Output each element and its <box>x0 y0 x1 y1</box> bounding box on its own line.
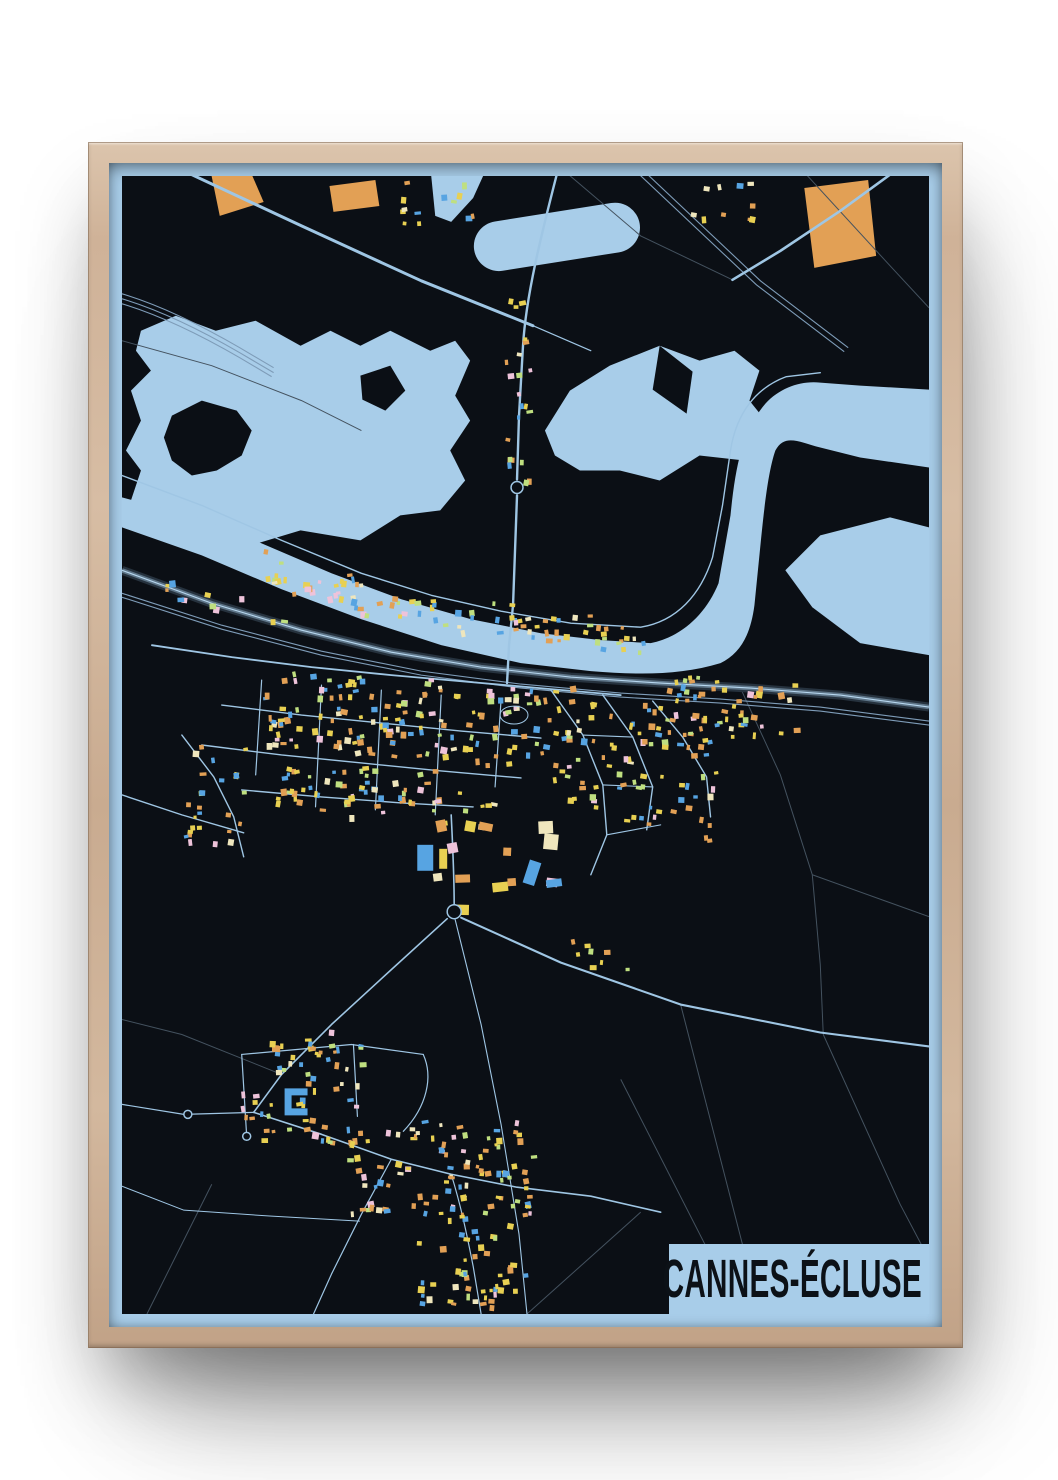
poster-title: CANNES-ÉCLUSE <box>663 1244 929 1314</box>
title-block: CANNES-ÉCLUSE <box>669 1244 929 1314</box>
landmark-layer <box>184 481 542 1140</box>
poster: CANNES-ÉCLUSE <box>109 163 942 1327</box>
map-area: CANNES-ÉCLUSE <box>122 176 929 1314</box>
scene: CANNES-ÉCLUSE <box>0 0 1058 1480</box>
poster-frame: CANNES-ÉCLUSE <box>88 142 963 1348</box>
map-canvas <box>122 176 929 1314</box>
